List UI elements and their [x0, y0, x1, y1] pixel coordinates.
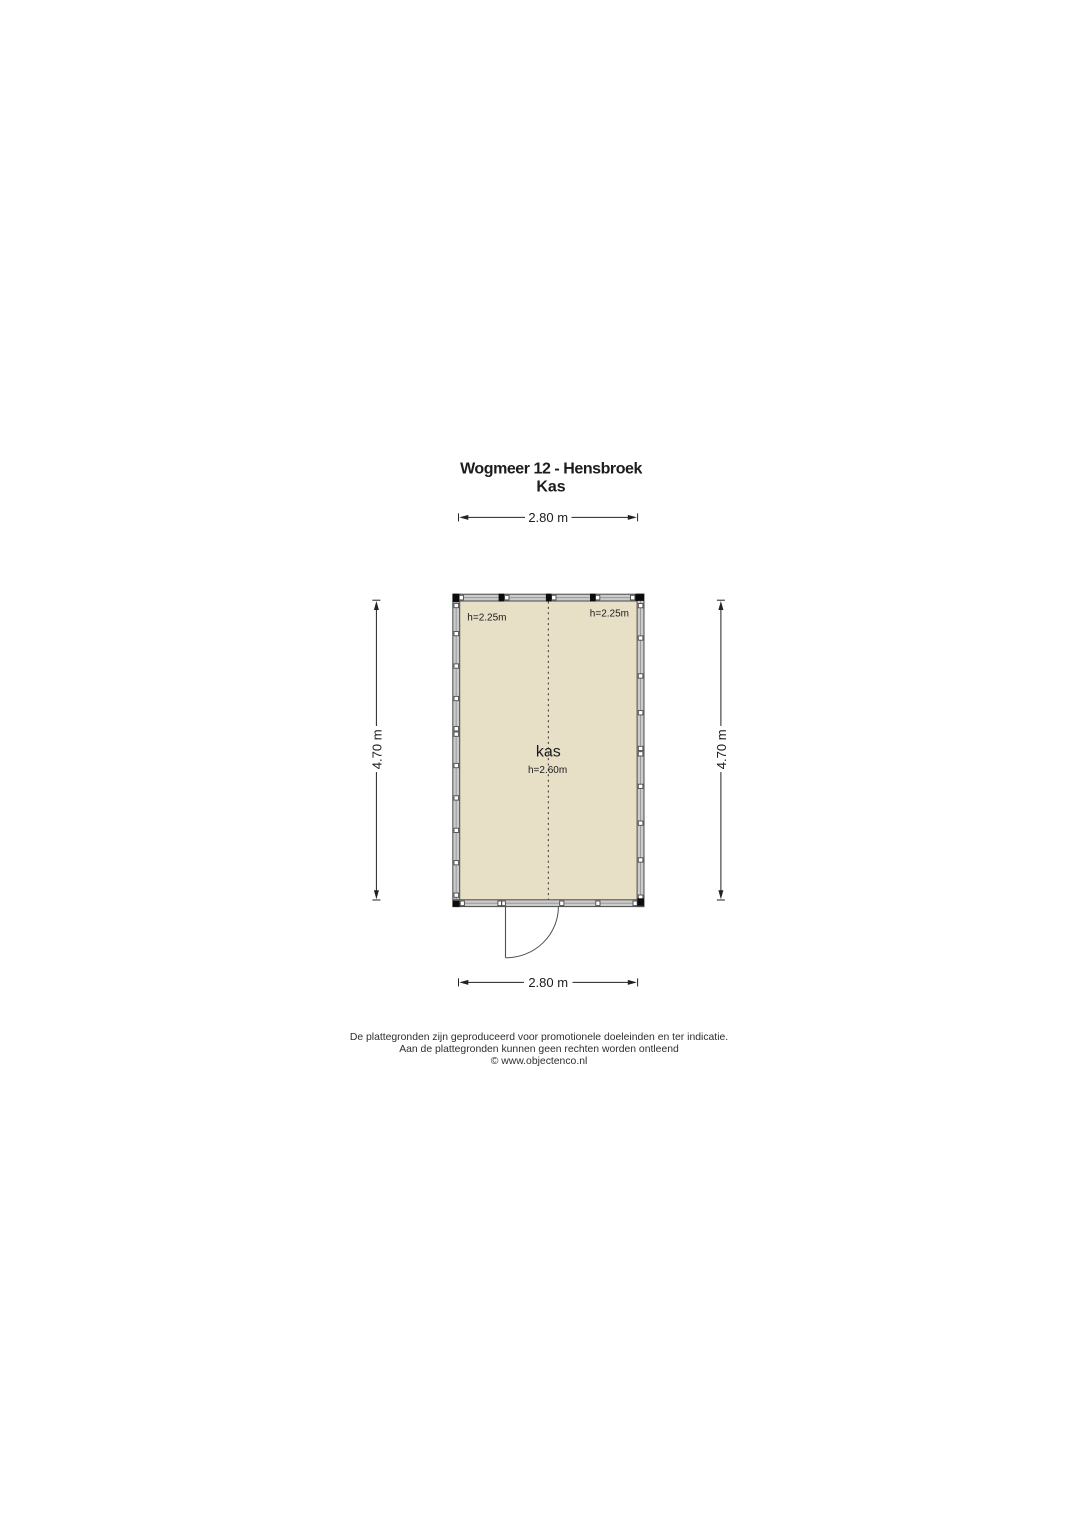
svg-text:2.80 m: 2.80 m	[528, 510, 568, 525]
svg-text:De plattegronden zijn geproduc: De plattegronden zijn geproduceerd voor …	[350, 1032, 728, 1043]
svg-text:Wogmeer 12 - Hensbroek: Wogmeer 12 - Hensbroek	[460, 461, 642, 478]
svg-text:kas: kas	[536, 743, 561, 760]
svg-text:h=2.25m: h=2.25m	[467, 612, 506, 623]
svg-text:2.80 m: 2.80 m	[528, 975, 568, 990]
svg-text:4.70 m: 4.70 m	[369, 729, 384, 769]
svg-text:h=2.60m: h=2.60m	[528, 765, 567, 776]
svg-text:Kas: Kas	[536, 479, 565, 496]
svg-text:Aan de plattegronden kunnen ge: Aan de plattegronden kunnen geen rechten…	[399, 1044, 679, 1055]
svg-text:4.70 m: 4.70 m	[714, 729, 729, 769]
svg-text:h=2.25m: h=2.25m	[590, 609, 629, 620]
svg-text:© www.objectenco.nl: © www.objectenco.nl	[491, 1056, 588, 1067]
